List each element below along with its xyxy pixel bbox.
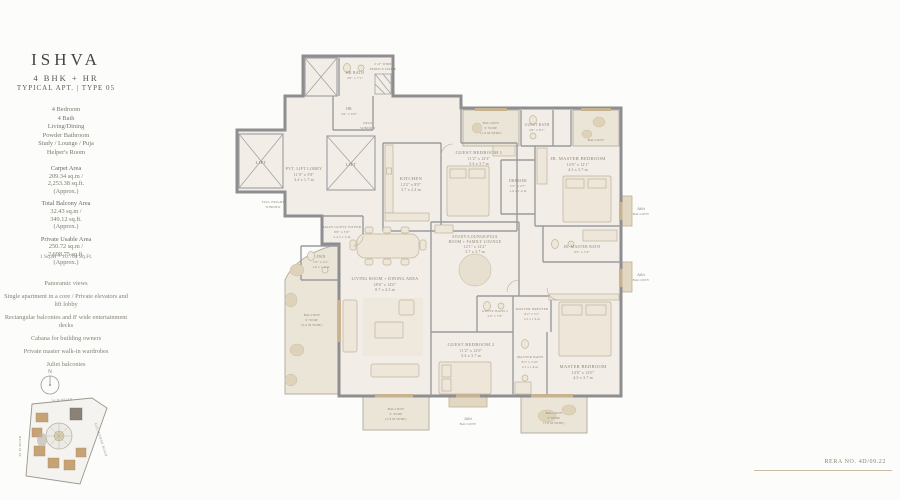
balcony-area: Total Balcony Area 32.43 sq.m / 349.12 s… xyxy=(0,200,132,230)
feature-item: Panoramic views xyxy=(2,280,130,288)
study-label: STUDY/LOUNGE/PUJA xyxy=(452,235,498,239)
juliet-label-2: Juliet xyxy=(637,273,646,277)
config-item: Helper's Room xyxy=(0,149,132,158)
guest-bed2-furniture xyxy=(439,362,491,394)
basin xyxy=(530,133,536,139)
balcony-tr-label: BALCONY xyxy=(588,138,605,142)
foyer-dims-m: 2.4 x 1.5 m xyxy=(333,235,350,239)
feature-list: Panoramic views Single apartment in a co… xyxy=(2,280,130,374)
guest-bath-dims: 4'6" x 8'1" xyxy=(529,128,545,132)
lift-2-label: LIFT xyxy=(346,162,357,167)
chair xyxy=(401,259,409,265)
pillow xyxy=(566,179,584,188)
pwd-dims-ft: 5'2" x 4'1" xyxy=(313,260,329,264)
plant xyxy=(582,130,592,138)
area-sqft: 349.12 sq.ft. xyxy=(0,216,132,224)
balcony-bl-label: BALCONY xyxy=(388,407,405,411)
guest-bed2-label: GUEST BEDROOM 2 xyxy=(448,342,495,347)
lobby-dims-m: 3.4 x 1.7 m xyxy=(294,178,314,182)
master-bath-dims-ft: 8'2" x 5'10" xyxy=(522,360,539,364)
sofa xyxy=(371,364,419,377)
hr-room-label: HR xyxy=(346,107,352,111)
lobby-label: PVT. LIFT LOBBY xyxy=(286,166,323,171)
bottom-left-door xyxy=(375,394,413,398)
living-dims-m: 8.7 x 4.3 m xyxy=(375,288,395,292)
balcony-bl-label3: (1.8 M WIDE) xyxy=(385,417,406,421)
road-label-left: 30 M ROAD xyxy=(18,435,22,456)
chair xyxy=(383,227,391,233)
floor-plan: LIFT LIFT PVT. LIFT LOBBY 11'0" x 5'8" 3… xyxy=(225,48,675,453)
master-dresser-label: MASTER DRESSER xyxy=(516,307,549,311)
site-building xyxy=(64,460,75,470)
config-item: Powder Bathroom xyxy=(0,132,132,141)
service-ledge-label: 2'-0" WIDE xyxy=(374,62,391,66)
kitchen-dims-m: 3.7 x 2.4 m xyxy=(401,188,421,192)
top-left-balcony-door xyxy=(475,108,507,111)
balcony-tl-label3: (1.8 M WIDE) xyxy=(480,131,501,135)
jr-master-bath-label: JR. MASTER BATH xyxy=(564,245,601,249)
pillow xyxy=(586,305,606,315)
guest-bed1-dims-ft: 11'2" x 12'3" xyxy=(468,157,491,161)
living-label: LIVING ROOM + DINING AREA xyxy=(351,276,418,281)
bathtub xyxy=(583,230,617,241)
config-item: Study / Lounge / Puja xyxy=(0,140,132,149)
plant xyxy=(562,405,576,415)
plant xyxy=(290,264,304,276)
lobby-dims-ft: 11'0" x 5'8" xyxy=(294,173,315,177)
pillow xyxy=(562,305,582,315)
site-building-dark xyxy=(70,408,82,420)
project-subtitle: 4 BHK + HR xyxy=(0,73,132,83)
footer-divider xyxy=(754,470,892,471)
full-height-window-label: FULL HEIGHT xyxy=(262,200,285,204)
guest-bed2-dims-ft: 11'2" x 12'0" xyxy=(460,349,483,353)
site-building xyxy=(34,446,45,456)
juliet-label-3: Juliet xyxy=(464,417,473,421)
pillow xyxy=(442,365,451,377)
dresser-label: DRESSER xyxy=(509,179,527,183)
counter xyxy=(385,213,429,221)
juliet-label-1: Juliet xyxy=(637,207,646,211)
chair xyxy=(365,259,373,265)
config-item: 4 Bedroom xyxy=(0,106,132,115)
wardrobe xyxy=(537,148,547,184)
coffee-table xyxy=(375,322,403,338)
toilet xyxy=(522,340,529,349)
area-sqm: 250.72 sq.m / xyxy=(0,243,132,251)
site-key-plan: 24 M ROAD 30 M ROAD GULMOHAR ROAD xyxy=(12,394,128,492)
hr-bath-label: HR BATH xyxy=(346,71,364,75)
usable-area: Private Usable Area 250.72 sq.m / 2,698.… xyxy=(0,236,132,266)
balcony-tl-label: BALCONY xyxy=(483,121,500,125)
feature-item: Private master walk-in wardrobes xyxy=(2,348,130,356)
site-building xyxy=(48,458,59,468)
master-bed-furniture xyxy=(549,294,619,356)
juliet-balcony-bottom xyxy=(449,396,487,407)
jr-master-label: JR. MASTER BEDROOM xyxy=(550,156,605,161)
toilet xyxy=(552,240,559,249)
guest-bed1-dims-m: 3.4 x 3.7 m xyxy=(469,162,489,166)
master-dresser-dims-ft: 8'2" x 5'2" xyxy=(524,312,540,316)
balcony-br-label3: (1.8 M WIDE) xyxy=(543,421,564,425)
juliet-balcony-right-2 xyxy=(621,262,632,292)
dining-table xyxy=(357,234,419,258)
master-bath-label: MASTER BATH xyxy=(517,355,543,359)
compass-north-label: N xyxy=(48,369,52,375)
rera-number: RERA NO. 4D/09.22 xyxy=(824,459,886,465)
master-bed-dims-m: 4.3 x 3.7 m xyxy=(573,376,593,380)
juliet-door-1 xyxy=(619,202,623,220)
counter xyxy=(385,145,393,213)
carpet-area: Carpet Area 209.34 sq.m / 2,253.38 sq.ft… xyxy=(0,165,132,195)
configuration-list: 4 Bedroom 4 Bath Living/Dining Powder Ba… xyxy=(0,106,132,158)
chair xyxy=(401,227,409,233)
deck-window-label2: WINDOW xyxy=(360,126,375,130)
pwd-label: PWD xyxy=(317,255,326,259)
area-label: Private Usable Area xyxy=(0,236,132,244)
hr-bath-dims: 4'0" x 7'1" xyxy=(347,76,364,80)
area-sqm: 209.34 sq.m / xyxy=(0,173,132,181)
plant xyxy=(290,344,304,356)
area-sqm: 32.43 sq.m / xyxy=(0,208,132,216)
pillow xyxy=(469,169,485,178)
area-label: Total Balcony Area xyxy=(0,200,132,208)
juliet-door-bottom xyxy=(456,394,480,398)
guest-bed1-label: GUEST BEDROOM 1 xyxy=(456,150,503,155)
juliet-balcony-right-1 xyxy=(621,196,632,226)
plant xyxy=(593,117,605,127)
living-deck-door xyxy=(338,300,341,342)
juliet-label-3b: BALCONY xyxy=(460,422,477,426)
guest-bath-label: GUEST BATH xyxy=(525,123,550,127)
balcony-br-label2: 6' WIDE xyxy=(548,416,561,420)
bottom-right-door xyxy=(531,394,573,398)
plant xyxy=(285,293,297,307)
armchair xyxy=(399,300,414,315)
config-item: Living/Dining xyxy=(0,123,132,132)
area-approx: (Approx.) xyxy=(0,188,132,196)
jr-master-dims-m: 4.3 x 3.7 m xyxy=(568,168,588,172)
dresser-dims-m: 1.6 x 1.4 m xyxy=(509,189,526,193)
master-bed-dims-ft: 14'0" x 12'0" xyxy=(572,371,595,375)
kitchen-dims-ft: 12'2" x 8'0" xyxy=(401,183,422,187)
area-label: Carpet Area xyxy=(0,165,132,173)
balcony-left-label3: (2.6 M WIDE) xyxy=(301,323,322,327)
brochure-page: ISHVA 4 BHK + HR TYPICAL APT. | TYPE 05 … xyxy=(0,0,900,500)
service-ledge-label2: SERVICE LEDGE xyxy=(370,67,397,71)
apartment-type: TYPICAL APT. | TYPE 05 xyxy=(0,84,132,92)
wardrobe xyxy=(549,294,619,300)
chair xyxy=(350,240,356,250)
puja-unit xyxy=(435,225,453,233)
foyer-dims-ft: 8'0" x 5'0" xyxy=(334,230,350,234)
living-dims-ft: 28'6" x 14'0" xyxy=(374,283,397,287)
chair xyxy=(420,240,426,250)
balcony-bl-label2: 6' WIDE xyxy=(390,412,403,416)
foyer-label: MAIN GUEST FOYER xyxy=(323,225,362,229)
config-item: 4 Bath xyxy=(0,115,132,124)
master-dresser-dims-m: 2.5 x 1.6 m xyxy=(524,317,541,321)
jr-master-bath-dims: 8'2" x 5'4" xyxy=(574,250,590,254)
sink xyxy=(387,168,392,174)
project-title: ISHVA xyxy=(0,50,132,70)
balcony-left-label: BALCONY xyxy=(304,313,321,317)
basin xyxy=(522,375,528,381)
shower xyxy=(515,382,531,394)
round-rug xyxy=(459,254,491,286)
guest-bath2-label: GUEST BATH 2 xyxy=(482,309,508,313)
unit-conversion-note: 1 Sq.M = 10.764 Sq.Ft. xyxy=(0,254,132,260)
site-building xyxy=(36,413,48,422)
lift-1-label: LIFT xyxy=(256,160,267,165)
deck-window-label: DECK xyxy=(363,121,373,125)
juliet-label-2b: BALCONY xyxy=(633,278,650,282)
study-dims-m: 3.7 x 3.7 m xyxy=(465,250,485,254)
site-building xyxy=(76,448,86,457)
plant xyxy=(285,374,297,386)
site-landscape xyxy=(37,433,47,447)
compass-pivot xyxy=(49,384,51,386)
sofa xyxy=(343,300,357,352)
hr-room-dims: 5'6" x 6'0" xyxy=(341,112,358,116)
chair xyxy=(383,259,391,265)
dresser-dims-ft: 5'2" x 4'7" xyxy=(510,184,526,188)
guest-bath2-dims: 5'0" x 7'8" xyxy=(487,314,503,318)
feature-item: Cabana for building owners xyxy=(2,335,130,343)
master-bath-dims-m: 2.5 x 1.8 m xyxy=(522,365,539,369)
pillow xyxy=(588,179,606,188)
pillow xyxy=(442,379,451,391)
study-dims-ft: 12'1" x 12'2" xyxy=(464,245,487,249)
full-height-window-label2: WINDOW xyxy=(265,205,280,209)
study-label2: ROOM + FAMILY LOUNGE xyxy=(449,240,502,244)
feature-item: Single apartment in a core / Private ele… xyxy=(2,293,130,309)
balcony-tl-label2: 6' WIDE xyxy=(485,126,498,130)
feature-item: Rectangular balconies and 8' wide entert… xyxy=(2,314,130,330)
jr-master-dims-ft: 14'0" x 12'1" xyxy=(567,163,590,167)
top-right-balcony-door xyxy=(581,108,611,111)
kitchen-label: KITCHEN xyxy=(400,176,423,181)
pillow xyxy=(450,169,466,178)
brand-block: ISHVA 4 BHK + HR xyxy=(0,50,132,83)
chair xyxy=(365,227,373,233)
area-approx: (Approx.) xyxy=(0,223,132,231)
juliet-door-2 xyxy=(619,269,623,287)
guest-bed2-dims-m: 3.4 x 3.7 m xyxy=(461,354,481,358)
area-sqft: 2,253.38 sq.ft. xyxy=(0,180,132,188)
juliet-label-1b: BALCONY xyxy=(633,212,650,216)
balcony-br-label: BALCONY xyxy=(546,411,563,415)
master-bed-label: MASTER BEDROOM xyxy=(560,364,607,369)
pwd-dims-m: 1.6 x 1.2 m xyxy=(312,265,329,269)
balcony-left-label2: 9' WIDE xyxy=(306,318,319,322)
